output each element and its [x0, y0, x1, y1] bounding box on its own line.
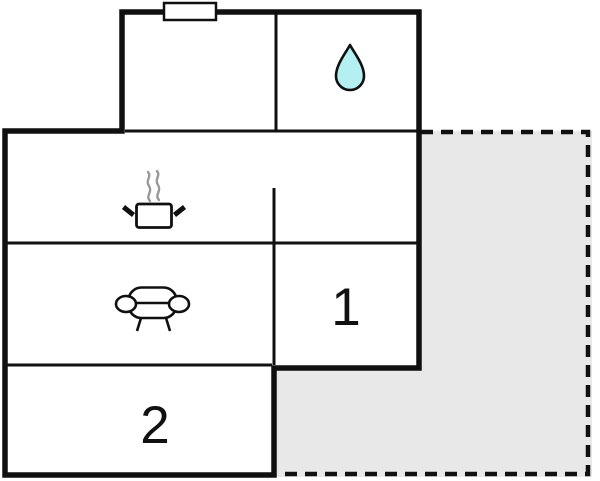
pot-body [137, 204, 172, 228]
floor-plan-canvas: 1 2 [0, 0, 600, 481]
room-1-label: 1 [331, 278, 360, 337]
water-drop-shape [336, 45, 364, 90]
water-drop-icon [336, 45, 364, 90]
window-icon [164, 3, 216, 20]
steam-wisp-right [157, 171, 159, 200]
room-2-label: 2 [140, 396, 169, 455]
sofa-armrest-right [169, 296, 189, 312]
sofa-icon [116, 288, 189, 332]
sofa-armrest-left [116, 296, 136, 312]
sofa-legs [137, 318, 170, 331]
cooking-pot-icon [124, 171, 185, 228]
floor-plan: 1 2 [0, 0, 600, 481]
terrace-area [276, 131, 592, 477]
steam-wisp-left [148, 172, 150, 201]
